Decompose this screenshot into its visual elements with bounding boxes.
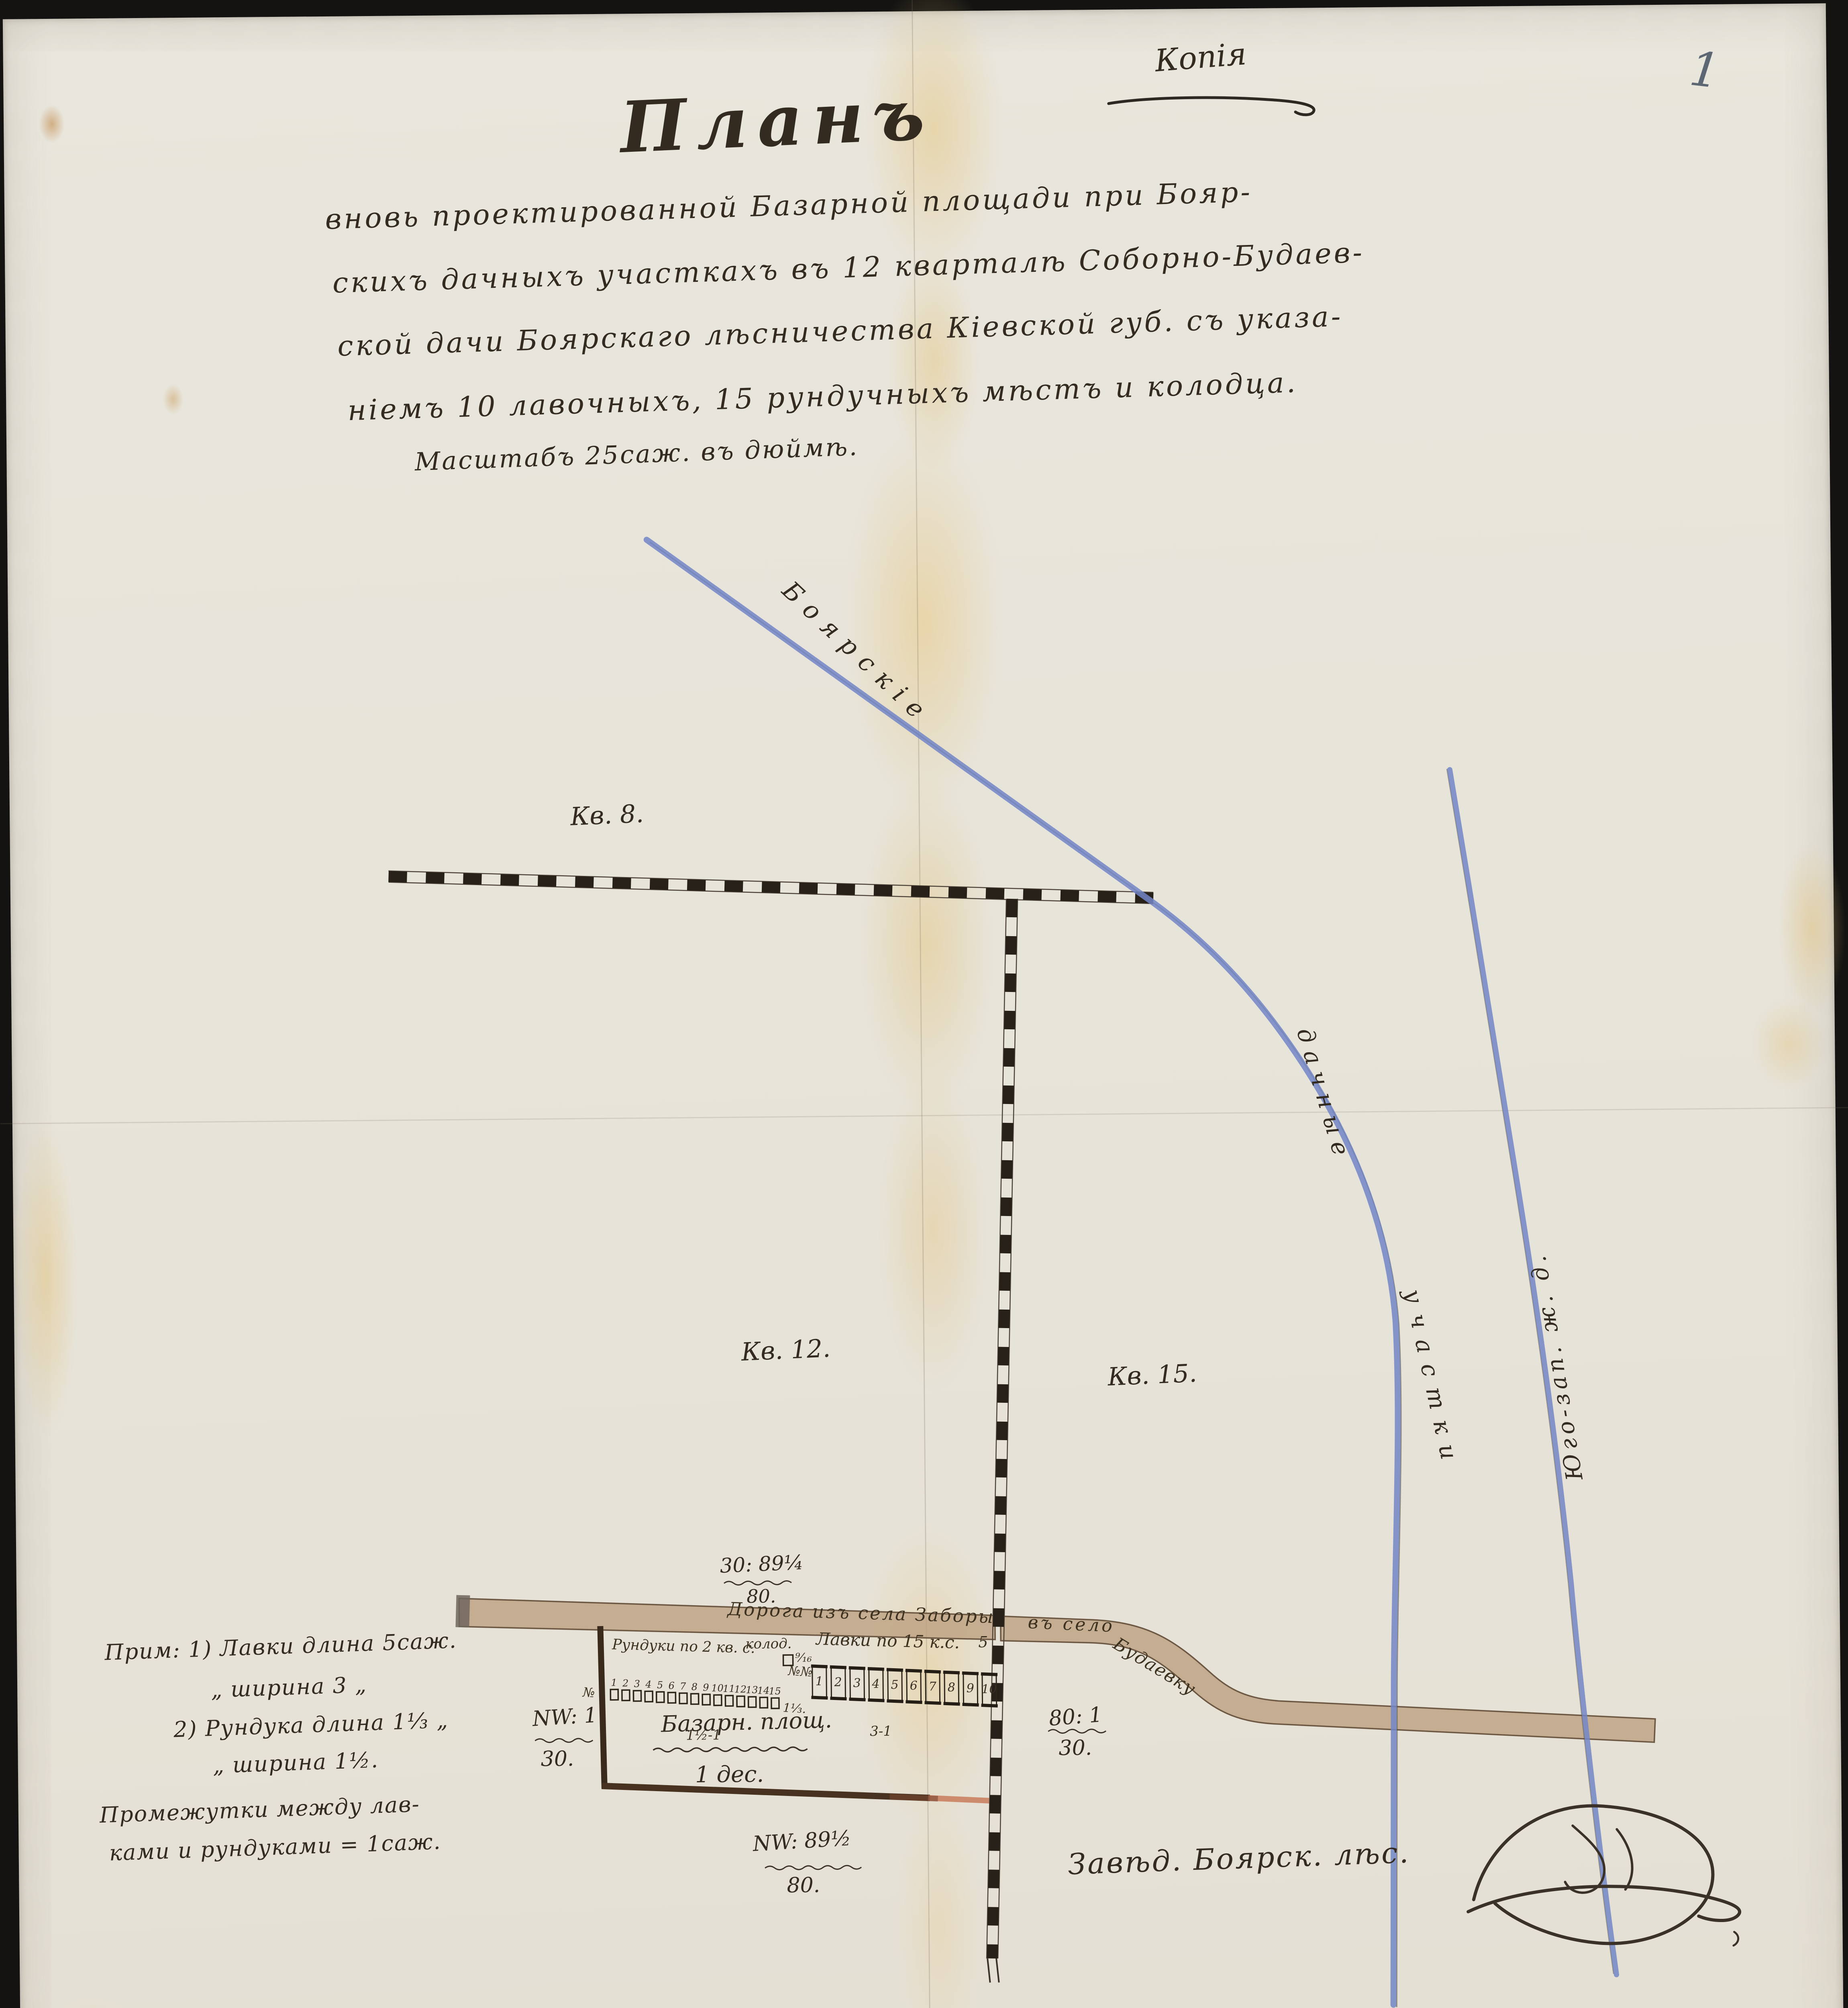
quarter-label-kv12: Кв. 12. [740,1333,831,1367]
quarter-boundary-end-prong [987,1959,990,1983]
lavka-top-bar [906,1670,922,1671]
runduk-number: 10 [711,1682,724,1694]
plan-drawing: 123456789101112131415 12345678910 [0,0,1848,2008]
wavy-underline-bottom-bearing [765,1865,861,1870]
wavy-underline-left-bearing [535,1739,593,1743]
lavka-number: 6 [910,1679,917,1693]
runduk-number: 4 [645,1679,652,1690]
quarter-label-kv8: Кв. 8. [570,799,645,831]
bearing-bottom-under: 80. [787,1873,820,1898]
runduk-number: 12 [734,1684,747,1695]
lavka-number: 3 [853,1676,861,1690]
quarter-boundary-horizontal [389,870,1154,905]
lavka-number: 8 [948,1680,955,1694]
lavka-bottom-bar [981,1705,998,1706]
lavka-bottom-bar [849,1699,865,1700]
lavki-extra: 5 [978,1633,988,1651]
runduk-number: 14 [757,1685,770,1696]
map-canvas: 123456789101112131415 12345678910 Копія … [0,0,1848,2008]
quarter-boundary-end-prong [996,1958,999,1982]
runduk-number: 6 [668,1680,675,1691]
runduk-stall [702,1694,710,1705]
page-number: 1 [1687,41,1723,99]
railway-blue-line [1450,768,1616,1976]
lavka-top-bar [924,1671,941,1672]
dirt-road-label-to-1: въ село [1028,1612,1115,1636]
bearing-top-under: 80. [747,1585,776,1607]
copy-note: Копія [1154,36,1248,79]
lavka-number: 2 [834,1675,842,1689]
runduki-no-mark: № [582,1684,596,1700]
lavka-top-bar [849,1667,865,1668]
bearing-right-under: 30. [1059,1736,1092,1760]
lavka-bottom-bar [925,1702,941,1703]
plan-title: Планъ [618,73,936,169]
runduk-stall [633,1691,641,1701]
railway-ink-edge [1447,767,1613,1975]
dirt-road-end-cap [455,1595,470,1628]
lavka-bottom-bar [963,1704,979,1705]
wavy-underline-top-bearing [724,1581,791,1585]
runduk-number: 15 [769,1686,781,1697]
well-size: ⁹⁄₁₆ [795,1651,812,1665]
lavka-top-bar [830,1667,846,1667]
lavki-label: Лавки по 15 к.с. [816,1629,960,1652]
lavka-number: 7 [928,1679,936,1694]
runduki-row: 123456789101112131415 [610,1675,781,1710]
lavka-number: 1 [815,1674,823,1688]
runduk-stall [610,1690,618,1700]
runduk-stall [714,1695,722,1705]
lavka-number: 10 [981,1682,997,1696]
runduk-stall [691,1694,699,1704]
bazaar-area-label: 1 дес. [695,1761,764,1788]
lavka-bottom-bar [811,1697,828,1698]
runduk-number: 8 [691,1681,698,1692]
bearing-right-value: 80: 1 [1048,1703,1103,1731]
bearing-top-value: 30: 89¼ [719,1551,804,1577]
runduk-number: 5 [657,1679,663,1691]
runduk-stall [645,1691,653,1702]
bazaar-square-left-edge [600,1626,605,1788]
bazaar-square-bottom-edge [602,1783,930,1801]
signature-flourish [1467,1804,1740,1948]
lavka-top-bar [962,1673,979,1674]
lavka-top-bar [868,1669,884,1669]
lavka-bottom-bar [906,1702,922,1702]
lavka-bottom-bar [868,1700,884,1701]
under-lavki-mark: 3-1 [870,1723,892,1739]
runduk-number: 13 [746,1684,758,1696]
lavka-bottom-bar [944,1703,960,1704]
runduk-stall [679,1693,687,1704]
lavka-number: 5 [891,1678,898,1692]
runduk-stall [622,1690,630,1700]
lavki-no-mark: №№ [788,1663,813,1680]
bazaar-square-bottom-edge-red [928,1798,996,1802]
bazaar-square-bottom-edge-dark [890,1796,938,1799]
copy-note-underline [1109,97,1314,117]
quarter-label-kv15: Кв. 15. [1107,1358,1197,1392]
runduk-stall [657,1692,664,1702]
runduk-stall [760,1698,767,1708]
lavka-bottom-bar [830,1698,846,1699]
document-sheet: 123456789101112131415 12345678910 Копія … [3,3,1844,2008]
runduk-number: 2 [622,1677,629,1689]
runduk-number: 3 [634,1678,640,1690]
runduk-stall [749,1697,756,1707]
lavka-top-bar [811,1666,828,1667]
runduk-stall [668,1692,675,1703]
runduk-stall [737,1696,745,1706]
lavka-number: 9 [967,1681,974,1696]
runduk-number: 7 [680,1681,686,1692]
lavka-top-bar [887,1669,903,1670]
bearing-left-under: 30. [541,1747,574,1771]
lavka-top-bar [943,1672,960,1673]
bazaar-square-label: Базарн. площ. [661,1707,832,1737]
lavka-number: 4 [871,1677,879,1691]
runduk-number: 9 [703,1682,709,1693]
runduk-number: 11 [723,1683,735,1694]
lavki-row: 12345678910 [811,1664,998,1707]
wavy-underline-bazaar [653,1747,807,1752]
bearing-left-value: NW: 1 [532,1703,598,1731]
runduk-stall [725,1696,733,1706]
runduk-stall [771,1698,779,1708]
lavka-bottom-bar [887,1701,903,1702]
well-label: колод. [745,1636,792,1652]
runduk-number: 1 [611,1677,617,1688]
lavka-top-bar [981,1674,997,1675]
